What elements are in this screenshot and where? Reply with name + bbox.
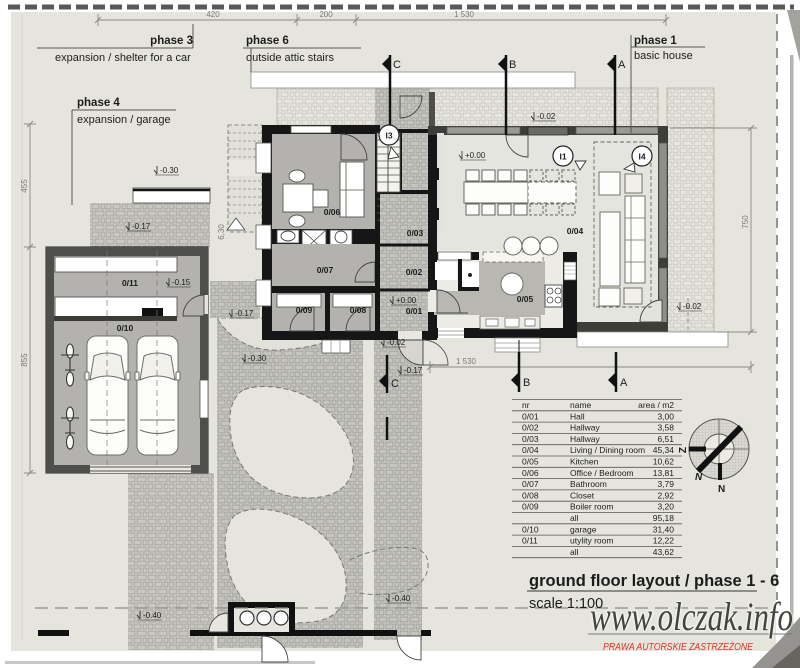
svg-text:+0.00: +0.00: [396, 296, 417, 305]
svg-text:1 530: 1 530: [454, 10, 475, 19]
svg-text:-0.02: -0.02: [537, 112, 556, 121]
svg-text:Hallway: Hallway: [570, 434, 601, 444]
svg-text:Closet: Closet: [570, 490, 595, 500]
svg-text:name: name: [570, 400, 592, 410]
svg-text:6,30: 6,30: [217, 224, 226, 240]
svg-text:0/02: 0/02: [522, 423, 539, 433]
svg-text:0/06: 0/06: [522, 468, 539, 478]
svg-text:0/08: 0/08: [522, 490, 539, 500]
svg-text:43,62: 43,62: [653, 547, 675, 557]
svg-text:0/04: 0/04: [522, 445, 539, 455]
svg-text:0/10: 0/10: [117, 323, 134, 333]
svg-text:13,81: 13,81: [653, 468, 675, 478]
svg-text:-0.15: -0.15: [172, 278, 191, 287]
svg-text:1 530: 1 530: [456, 357, 477, 366]
svg-text:0/06: 0/06: [324, 207, 341, 217]
svg-text:I4: I4: [638, 152, 645, 162]
svg-text:Office / Bedroom: Office / Bedroom: [570, 468, 634, 478]
svg-text:phase 4: phase 4: [77, 97, 120, 109]
svg-text:garage: garage: [570, 524, 597, 534]
svg-text:Living / Dining room: Living / Dining room: [570, 445, 645, 455]
svg-text:-0.17: -0.17: [132, 222, 151, 231]
svg-text:Hall: Hall: [570, 411, 585, 421]
svg-text:nr: nr: [522, 400, 530, 410]
svg-text:0/01: 0/01: [406, 306, 423, 316]
svg-text:3,79: 3,79: [657, 479, 674, 489]
svg-text:10,62: 10,62: [653, 457, 675, 467]
svg-text:Kitchen: Kitchen: [570, 457, 599, 467]
svg-text:all: all: [570, 547, 579, 557]
svg-text:all: all: [570, 513, 579, 523]
svg-text:0/02: 0/02: [406, 267, 423, 277]
svg-text:expansion / garage: expansion / garage: [77, 114, 171, 126]
svg-text:basic house: basic house: [634, 50, 693, 62]
svg-text:C: C: [393, 59, 401, 71]
svg-text:0/09: 0/09: [522, 502, 539, 512]
svg-text:Z: Z: [678, 447, 689, 453]
svg-text:-0.17: -0.17: [404, 366, 423, 375]
svg-text:0/08: 0/08: [350, 305, 367, 315]
svg-text:855: 855: [20, 353, 29, 367]
svg-text:A: A: [618, 59, 626, 71]
svg-text:A: A: [620, 377, 628, 389]
svg-text:200: 200: [319, 10, 333, 19]
svg-text:455: 455: [20, 179, 29, 193]
svg-text:B: B: [523, 377, 530, 389]
svg-text:+0.00: +0.00: [465, 151, 486, 160]
svg-text:0/05: 0/05: [522, 457, 539, 467]
svg-text:31,40: 31,40: [653, 524, 675, 534]
svg-text:-0.02: -0.02: [387, 338, 406, 347]
svg-text:outside attic stairs: outside attic stairs: [246, 52, 335, 64]
svg-text:0/01: 0/01: [522, 411, 539, 421]
svg-text:N: N: [718, 484, 725, 495]
svg-text:2,92: 2,92: [657, 490, 674, 500]
svg-text:I1: I1: [559, 152, 566, 162]
svg-text:0/07: 0/07: [522, 479, 539, 489]
svg-text:0/09: 0/09: [296, 305, 313, 315]
svg-text:C: C: [391, 378, 399, 390]
svg-text:0/03: 0/03: [522, 434, 539, 444]
svg-text:95,18: 95,18: [653, 513, 675, 523]
svg-text:-0.40: -0.40: [392, 594, 411, 603]
svg-text:Bathroom: Bathroom: [570, 479, 607, 489]
svg-text:0/07: 0/07: [317, 265, 334, 275]
svg-text:PRAWA AUTORSKIE ZASTRZEŻONE: PRAWA AUTORSKIE ZASTRZEŻONE: [603, 641, 754, 653]
svg-text:Boiler room: Boiler room: [570, 502, 613, 512]
svg-text:0/03: 0/03: [407, 228, 424, 238]
svg-text:750: 750: [741, 215, 750, 229]
svg-text:I3: I3: [385, 131, 392, 141]
svg-text:expansion / shelter for a car: expansion / shelter for a car: [55, 52, 191, 64]
svg-text:area / m2: area / m2: [638, 400, 674, 410]
svg-text:-0.30: -0.30: [160, 166, 179, 175]
svg-text:ground floor layout / phase 1: ground floor layout / phase 1 - 6: [529, 572, 779, 590]
svg-text:0/10: 0/10: [522, 524, 539, 534]
svg-text:phase 6: phase 6: [246, 35, 289, 47]
svg-text:6,51: 6,51: [657, 434, 674, 444]
svg-text:420: 420: [206, 10, 220, 19]
svg-text:0/05: 0/05: [517, 294, 534, 304]
svg-text:0/11: 0/11: [122, 278, 138, 288]
svg-text:B: B: [509, 59, 516, 71]
svg-text:45,34: 45,34: [653, 445, 675, 455]
svg-text:12,22: 12,22: [653, 536, 675, 546]
svg-text:utylity room: utylity room: [570, 536, 613, 546]
svg-text:N: N: [695, 472, 703, 483]
svg-text:-0.30: -0.30: [248, 354, 267, 363]
svg-text:-0.17: -0.17: [235, 309, 254, 318]
svg-text:-0.40: -0.40: [143, 611, 162, 620]
svg-text:Hallway: Hallway: [570, 423, 601, 433]
svg-text:-0.02: -0.02: [683, 302, 702, 311]
svg-text:3,20: 3,20: [657, 502, 674, 512]
svg-text:phase 1: phase 1: [634, 35, 677, 47]
svg-text:www.olczak.info: www.olczak.info: [590, 594, 793, 639]
svg-text:0/04: 0/04: [567, 226, 584, 236]
svg-text:3,00: 3,00: [657, 411, 674, 421]
svg-text:phase 3: phase 3: [150, 35, 193, 47]
svg-text:3,58: 3,58: [657, 423, 674, 433]
svg-text:0/11: 0/11: [522, 536, 538, 546]
